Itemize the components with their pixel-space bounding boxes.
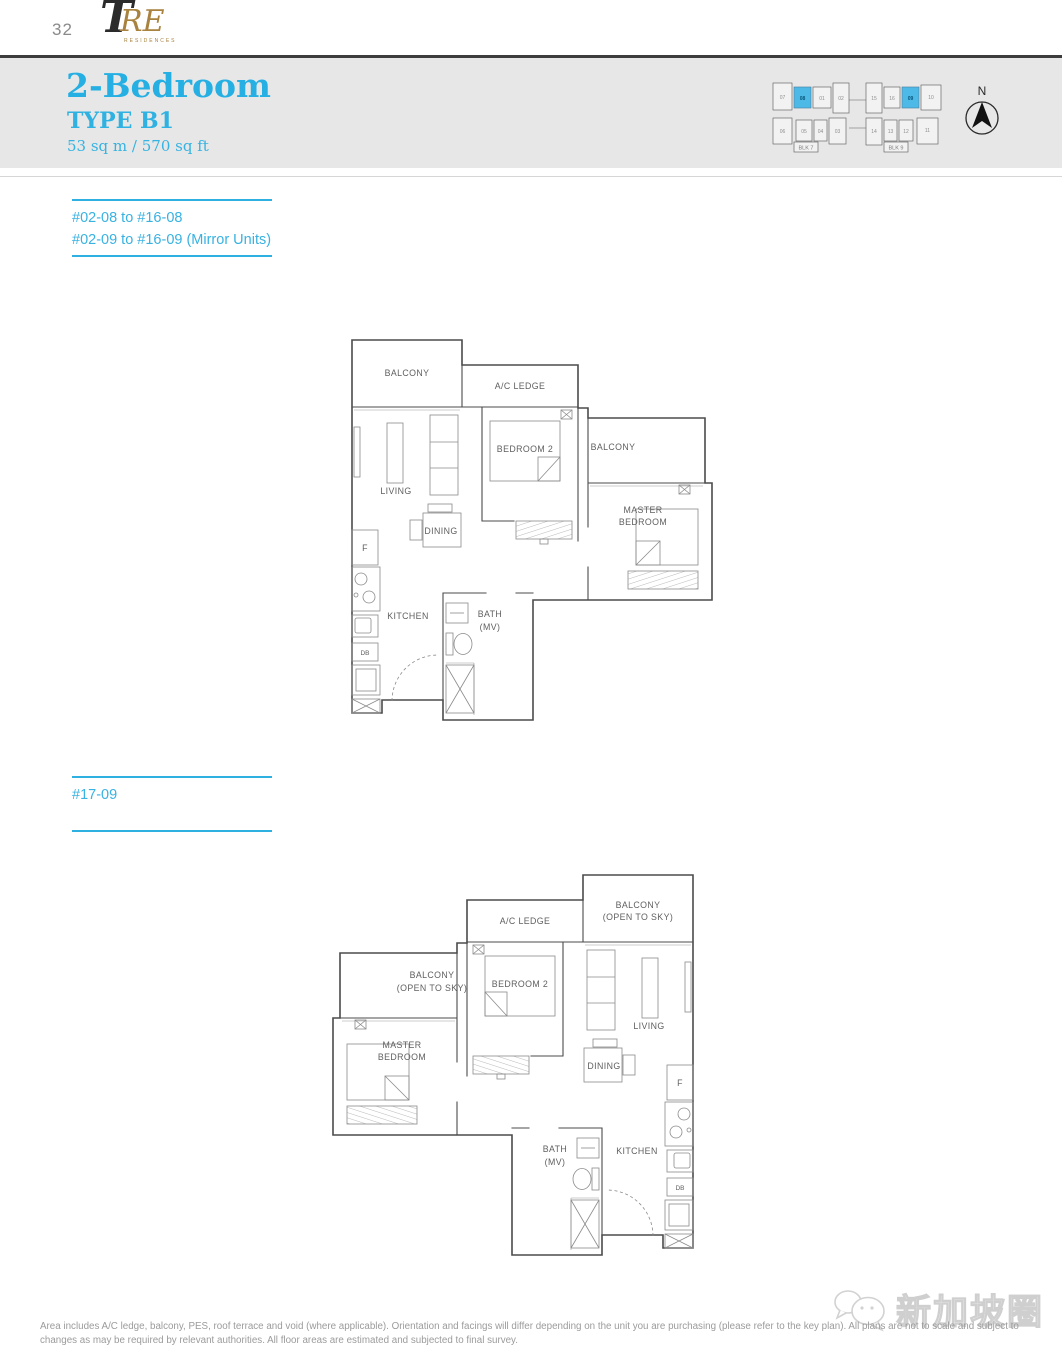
north-pointer <box>972 102 992 128</box>
room-label-bedroom2: BEDROOM 2 <box>492 979 548 989</box>
room-label-balcony-right-1: BALCONY <box>616 900 661 910</box>
keyplan-blk9-label: BLK 9 <box>889 146 904 152</box>
stack2-line1: #17-09 <box>72 784 117 806</box>
tre-residences-logo: T RE RESIDENCES <box>100 0 220 52</box>
keyplan-unit-number-highlighted: 09 <box>908 96 914 102</box>
stack1-line1: #02-08 to #16-08 <box>72 207 182 229</box>
room-label-dining: DINING <box>424 526 457 536</box>
room-label-balcony-left-2: (OPEN TO SKY) <box>397 983 467 993</box>
room-label-bedroom2: BEDROOM 2 <box>497 444 553 454</box>
stack1-rule-top <box>72 199 272 201</box>
header-bottom-rule <box>0 176 1062 177</box>
unit-area: 53 sq m / 570 sq ft <box>67 137 209 155</box>
room-label-balcony-right-2: (OPEN TO SKY) <box>603 912 673 922</box>
keyplan-unit-number: 10 <box>928 95 934 101</box>
brochure-page: 32 T RE RESIDENCES 2-Bedroom TYPE B1 53 … <box>0 0 1062 1353</box>
keyplan-unit-number: 13 <box>888 129 894 135</box>
room-label-ac-ledge: A/C LEDGE <box>495 381 546 391</box>
room-label-master-2: BEDROOM <box>619 517 667 527</box>
logo-subtext: RESIDENCES <box>124 38 177 44</box>
keyplan-unit-number: 06 <box>780 129 786 135</box>
disclaimer-text: Area includes A/C ledge, balcony, PES, r… <box>40 1320 1042 1347</box>
keyplan-unit-number: 15 <box>871 96 877 102</box>
unit-type: TYPE B1 <box>67 108 174 134</box>
stack2-rule-bottom <box>72 830 272 832</box>
keyplan-unit-number: 03 <box>835 129 841 135</box>
keyplan-unit-number-highlighted: 08 <box>800 96 806 102</box>
keyplan-unit-number: 05 <box>801 129 807 135</box>
room-label-balcony: BALCONY <box>385 368 430 378</box>
north-label: N <box>978 84 987 98</box>
room-label-kitchen: KITCHEN <box>387 611 428 621</box>
room-label-master-1: MASTER <box>382 1040 421 1050</box>
logo-letters-re: RE <box>120 4 165 39</box>
north-arrow: N <box>954 80 1010 144</box>
room-label-fridge: F <box>677 1078 683 1088</box>
stack1-line2: #02-09 to #16-09 (Mirror Units) <box>72 229 271 251</box>
keyplan-unit-number: 07 <box>780 95 786 101</box>
keyplan-connector <box>849 100 866 128</box>
room-label-bath-2: (MV) <box>545 1157 566 1167</box>
page-title: 2-Bedroom <box>66 66 271 105</box>
room-label-bath-1: BATH <box>543 1144 567 1154</box>
room-label-living: LIVING <box>380 486 411 496</box>
room-label-fridge: F <box>362 543 368 553</box>
keyplan-unit-number: 14 <box>871 129 877 135</box>
keyplan-unit-number: 16 <box>889 96 895 102</box>
room-label-balcony-left-1: BALCONY <box>410 970 455 980</box>
page-number: 32 <box>52 20 73 40</box>
keyplan-unit-number: 02 <box>838 96 844 102</box>
keyplan-unit-number: 04 <box>818 129 824 135</box>
room-label-ac-ledge: A/C LEDGE <box>500 916 551 926</box>
room-label-bath-1: BATH <box>478 609 502 619</box>
room-label-living: LIVING <box>633 1021 664 1031</box>
room-label-balcony-right: BALCONY <box>591 442 636 452</box>
stack1-rule-bottom <box>72 255 272 257</box>
room-label-master-1: MASTER <box>623 505 662 515</box>
floor-plan-1: BALCONY A/C LEDGE BEDROOM 2 BALCONY LIVI… <box>340 315 720 735</box>
keyplan-unit-number: 01 <box>819 96 825 102</box>
stack2-rule-top <box>72 776 272 778</box>
room-label-kitchen: KITCHEN <box>616 1146 657 1156</box>
room-label-bath-2: (MV) <box>480 622 501 632</box>
keyplan-unit-number: 11 <box>925 128 930 134</box>
keyplan-unit-number: 12 <box>903 129 909 135</box>
keyplan-blk7-label: BLK 7 <box>799 146 814 152</box>
key-plan: 07 08 01 02 06 05 04 03 15 16 09 10 14 1… <box>770 76 960 156</box>
room-label-master-2: BEDROOM <box>378 1052 426 1062</box>
room-label-db: DB <box>675 1185 684 1192</box>
floor-plan-2: A/C LEDGE BALCONY (OPEN TO SKY) BALCONY … <box>330 850 710 1270</box>
room-label-db: DB <box>360 650 369 657</box>
room-label-dining: DINING <box>587 1061 620 1071</box>
